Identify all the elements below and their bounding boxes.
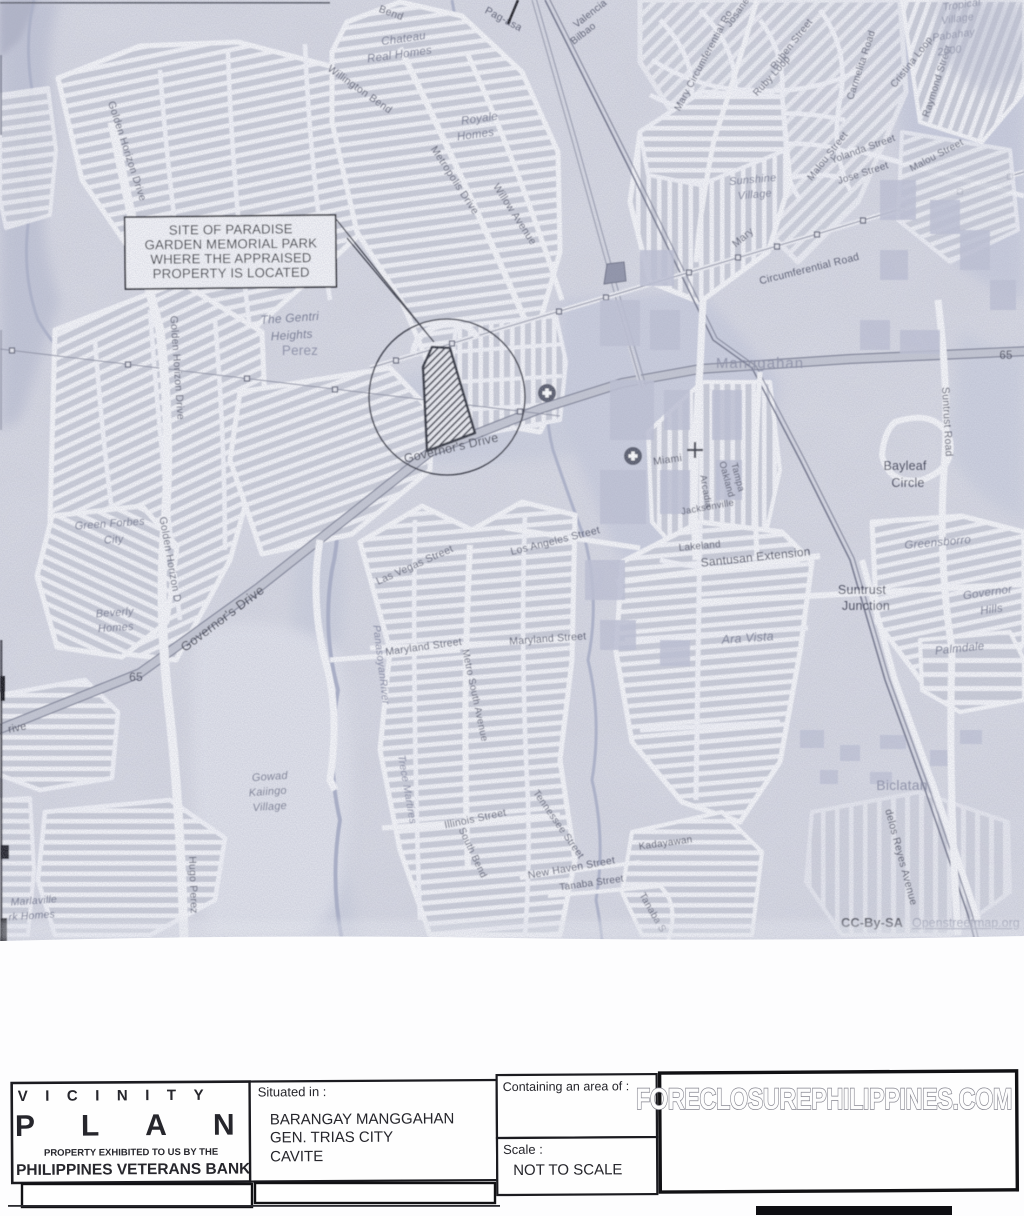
svg-text:Containing an area of :: Containing an area of : xyxy=(503,1079,630,1094)
svg-text:BARANGAY MANGGAHAN: BARANGAY MANGGAHAN xyxy=(270,1110,455,1128)
svg-text:PHILIPPINES VETERANS BANK: PHILIPPINES VETERANS BANK xyxy=(16,1161,251,1179)
svg-text:PLAN: PLAN xyxy=(15,1108,281,1143)
svg-text:CAVITE: CAVITE xyxy=(270,1148,323,1165)
svg-text:NOT TO SCALE: NOT TO SCALE xyxy=(513,1161,622,1179)
svg-text:VICINITY: VICINITY xyxy=(18,1087,221,1105)
svg-text:Scale :: Scale : xyxy=(503,1142,543,1157)
svg-text:GEN. TRIAS CITY: GEN. TRIAS CITY xyxy=(270,1129,393,1147)
svg-text:FORECLOSUREPHILIPPINES.COM: FORECLOSUREPHILIPPINES.COM xyxy=(636,1083,1012,1116)
svg-text:PROPERTY EXHIBITED TO US BY TH: PROPERTY EXHIBITED TO US BY THE xyxy=(44,1147,218,1159)
svg-text:Situated in :: Situated in : xyxy=(258,1084,327,1099)
